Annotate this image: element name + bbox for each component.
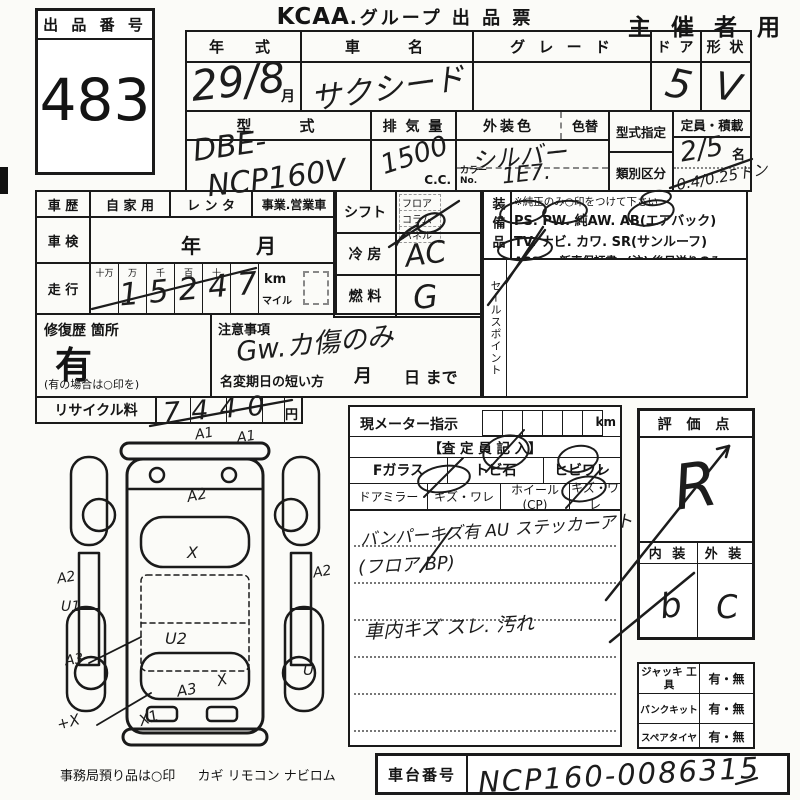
recolor-label: 色替	[560, 112, 608, 139]
mileage-label-cell: 走 行	[35, 262, 91, 315]
exterior-value: C	[714, 590, 740, 624]
shift-label: シフト	[335, 192, 397, 232]
damage-code: A2	[312, 564, 333, 581]
type-designation-cell: 型式指定 類別区分	[608, 110, 674, 192]
recycle-fee-value: 7440	[162, 392, 276, 427]
meter-unit: km	[596, 415, 616, 429]
color-no-value: 1E7.	[501, 162, 552, 189]
repair-note: (有の場合は○印を)	[44, 376, 139, 392]
year-cell: 年 式 29/8 月	[185, 30, 302, 112]
equipment-panel: 装備品 ※純正のみ○印をつけて下さい PS. PW. 純AW. AB(エアバック…	[482, 190, 748, 260]
recycle-fee-unit: 円	[285, 404, 298, 423]
fuel-row: 燃 料 G	[333, 274, 482, 318]
damage-code: A3	[64, 652, 84, 668]
rating-value: R	[670, 452, 721, 519]
meter-label: 現メーター指示	[360, 414, 458, 434]
history-option-private: 自 家 用	[89, 190, 171, 218]
tool-spare-tire-value: 有・無	[700, 724, 753, 749]
exterior-color-cell: 外装色 色替 シルバー カラーNo. 1E7.	[455, 110, 610, 192]
damage-code: X	[187, 545, 198, 561]
lot-number-box: 出 品 番 号 483	[35, 8, 155, 175]
model-cell: 型 式 DBE- NCP160V	[185, 110, 372, 192]
chassis-number-value: NCP160-0086315	[477, 754, 761, 798]
damage-code: A1	[194, 426, 215, 443]
door-value: 5	[662, 63, 695, 107]
fuel-label: 燃 料	[335, 276, 397, 316]
mileage-unit-checkbox	[303, 271, 329, 305]
car-name-value: サクシード	[309, 63, 467, 115]
damage-code: A1	[236, 429, 256, 445]
title-text: .グループ 出 品 票	[350, 8, 534, 29]
grade-cell: グ レ ー ド	[472, 30, 652, 112]
auction-sheet: 出 品 番 号 483 KCAA.グループ 出 品 票 主 催 者 用 年 式 …	[0, 0, 800, 800]
interior-label: 内 装	[640, 541, 697, 563]
digit-header-100k: 十万	[95, 266, 113, 279]
door-label: ド ア	[652, 32, 700, 63]
exterior-color-label: 外装色	[457, 112, 560, 139]
type-designation-label: 型式指定	[610, 112, 672, 153]
exterior-label: 外 装	[697, 541, 752, 563]
inspection-value-cell: 年 月	[89, 216, 337, 264]
tool-punctured-kit-value: 有・無	[700, 694, 753, 723]
scan-mark	[0, 167, 8, 194]
grade-label: グ レ ー ド	[474, 32, 650, 63]
cooling-value: AC	[403, 237, 448, 272]
salespoint-label: セールスポイント	[487, 280, 503, 376]
footer-note-label: 事務局預り品は○印	[60, 769, 175, 784]
brand-logo: KCAA	[277, 4, 350, 30]
salespoint-panel: セールスポイント	[482, 258, 748, 398]
car-name-cell: 車 名 サクシード	[300, 30, 474, 112]
inspection-label: 車 検	[37, 218, 89, 262]
assessor-note-2: (フロア BP)	[358, 554, 456, 577]
rename-day-label: 日 まで	[404, 364, 458, 388]
rating-label: 評 価 点	[640, 411, 752, 438]
shape-cell: 形 状 V	[700, 30, 752, 112]
shift-option-column: コラム	[399, 211, 441, 227]
lot-number-value: 483	[38, 40, 152, 160]
meter-panel: 現メーター指示 km 【査 定 員 記 入】 Fガラス トビ石 ヒビワレ ドアミ…	[348, 405, 622, 747]
footer-note: 事務局預り品は○印 カギ リモコン ナビロム	[60, 765, 336, 784]
tool-spare-tire-label: スペアタイヤ	[639, 724, 700, 749]
shape-label: 形 状	[702, 32, 750, 63]
history-label-cell: 車 歴	[35, 190, 91, 218]
shape-value: V	[712, 66, 743, 107]
damage-code: U	[303, 663, 314, 678]
displacement-unit: C.C.	[424, 173, 451, 187]
car-diagram-svg	[55, 425, 335, 765]
rating-panel: 評 価 点 R 内 装 外 装 b C	[637, 408, 755, 640]
color-no-label: カラーNo.	[460, 167, 490, 187]
equipment-line2: TV. ナビ. カワ. SR(サンルーフ)	[514, 231, 744, 250]
damage-code: A3	[176, 681, 198, 699]
inspection-year: 年	[181, 230, 201, 259]
assessor-heading: 【査 定 員 記 入】	[350, 437, 620, 457]
check-wheel-damage: キズ・ワレ	[570, 483, 620, 509]
check-front-glass: Fガラス	[350, 457, 448, 483]
recycle-fee-row: リサイクル料 円 7440	[35, 396, 303, 424]
chassis-number-label: 車台番号	[378, 756, 468, 792]
rename-deadline-label: 名変期日の短い方	[220, 371, 324, 390]
shift-row: シフト フロア コラム パネル	[333, 190, 482, 234]
footer-note-items: カギ リモコン ナビロム	[197, 769, 335, 784]
cooling-row: 冷 房 AC	[333, 232, 482, 276]
inspection-label-cell: 車 検	[35, 216, 91, 264]
fuel-value: G	[412, 280, 439, 314]
caution-cell: 注意事項 Gw.カ傷のみ 名変期日の短い方 月 日 まで	[210, 313, 482, 398]
check-door-mirror: ドアミラー	[350, 483, 428, 509]
displacement-cell: 排 気 量 1500 C.C.	[370, 110, 457, 192]
car-name-label: 車 名	[302, 32, 472, 63]
repair-cell: 修復歴 箇所 有 (有の場合は○印を)	[35, 313, 212, 398]
capacity-cell: 定員・積載 2/5 名 0.4/0.25トン	[672, 110, 752, 192]
inspection-month: 月	[256, 230, 276, 259]
damage-code: U1	[61, 600, 80, 614]
classification-label: 類別区分	[610, 153, 672, 192]
damage-code: A2	[186, 486, 208, 505]
equipment-label: 装備品	[488, 197, 507, 254]
tool-punctured-kit-label: パンクキット	[639, 694, 700, 723]
capacity-value: 2/5	[678, 132, 725, 166]
interior-value: b	[658, 588, 684, 625]
history-label: 車 歴	[37, 192, 89, 216]
meter-digit-cells	[482, 410, 603, 436]
equipment-line1: PS. PW. 純AW. AB(エアバック)	[514, 210, 744, 229]
rename-month-label: 月	[354, 362, 372, 388]
check-mirror-damage: キズ・ワレ	[428, 483, 501, 509]
sheet-title: KCAA.グループ 出 品 票	[240, 4, 570, 30]
mileage-digits-cell: 十万 万 千 百 十 一 km マイル 15247	[89, 262, 337, 315]
damage-code: A2	[56, 570, 77, 587]
tool-jack-label: ジャッキ 工具	[639, 664, 700, 693]
year-value: 29/8	[189, 56, 287, 108]
model-prefix: DBE-	[191, 127, 268, 167]
tool-jack-value: 有・無	[700, 664, 753, 693]
shift-option-floor: フロア	[399, 194, 441, 211]
car-diagram: A1 A1 A2 X A2 U1 A3 U2 A2 U A3 X X1 +X	[55, 425, 335, 765]
mileage-label: 走 行	[37, 264, 89, 313]
recycle-fee-label: リサイクル料	[37, 398, 157, 422]
check-stone-chip: トビ石	[448, 457, 544, 483]
year-unit: 月	[281, 86, 295, 106]
tools-table: ジャッキ 工具 有・無 パンクキット 有・無 スペアタイヤ 有・無	[637, 662, 755, 749]
equipment-note: ※純正のみ○印をつけて下さい	[514, 194, 744, 209]
capacity-unit: 名	[732, 144, 745, 163]
damage-code: U2	[165, 631, 187, 647]
check-wheel: ホイール(CP)	[501, 483, 570, 509]
lot-number-header: 出 品 番 号	[38, 11, 152, 40]
chassis-number-box: 車台番号 NCP160-0086315	[375, 753, 790, 795]
cooling-label: 冷 房	[335, 234, 397, 274]
door-cell: ド ア 5	[650, 30, 702, 112]
